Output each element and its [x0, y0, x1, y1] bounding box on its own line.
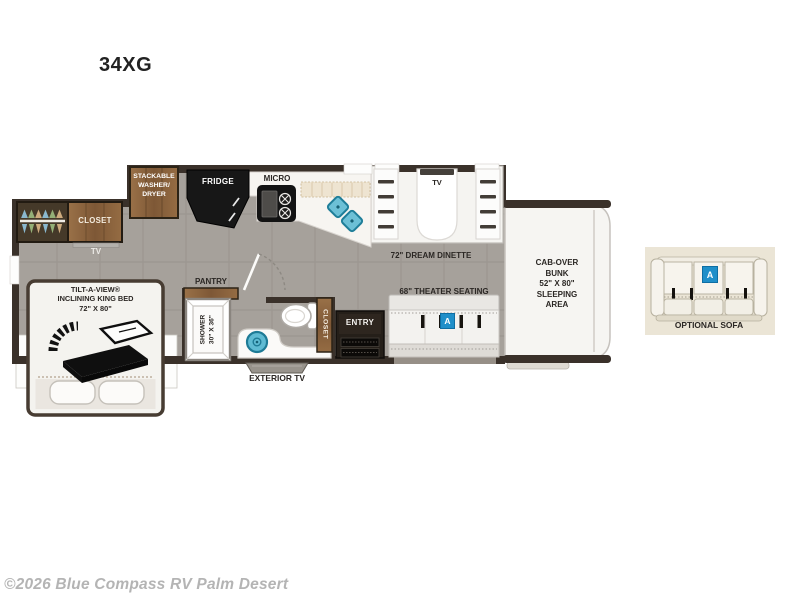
king-bed-label: TILT-A-VIEW® INCLINING KING BED 72" X 80…	[31, 285, 160, 313]
floorplan-page: 34XG	[0, 0, 800, 600]
cooktop-icon	[257, 185, 296, 222]
dinette-tv-label: TV	[420, 178, 454, 187]
pantry-label: PANTRY	[182, 277, 240, 287]
cab-over-bunk-label: CAB-OVER BUNK 52" X 80" SLEEPING AREA	[511, 258, 603, 311]
window-gap	[10, 256, 19, 284]
copyright-watermark: ©2026 Blue Compass RV Palm Desert	[4, 576, 288, 594]
micro-label: MICRO	[255, 174, 299, 184]
dinette-tv-icon	[420, 169, 454, 175]
exterior-tv-label: EXTERIOR TV	[227, 373, 327, 383]
hanger-rack-icon	[17, 202, 68, 242]
round-basin-sink-icon	[247, 332, 267, 352]
bedroom-tv-label: TV	[80, 247, 112, 257]
theater-seating	[389, 295, 499, 364]
pillow	[99, 381, 144, 404]
pillow	[50, 381, 95, 404]
dream-dinette	[371, 164, 503, 243]
theater-option-badge: A	[440, 313, 455, 329]
washer-dryer-label: STACKABLE WASHER/ DRYER	[129, 173, 179, 199]
pantry-shelf	[184, 288, 238, 299]
fridge-label: FRIDGE	[187, 177, 249, 187]
bath-closet-label: CLOSET	[320, 297, 328, 352]
theater-seating-label: 68" THEATER SEATING	[385, 287, 503, 297]
dream-dinette-label: 72" DREAM DINETTE	[368, 251, 494, 261]
sofa-option-badge: A	[702, 266, 718, 283]
entry-label: ENTRY	[338, 318, 382, 328]
toilet-icon	[281, 303, 317, 329]
window-gap	[344, 164, 372, 174]
rear-closet-label: CLOSET	[68, 216, 122, 226]
optional-sofa-label: OPTIONAL SOFA	[657, 320, 761, 330]
shower-label: SHOWER 30" X 36"	[199, 299, 216, 361]
exterior-tv-icon	[246, 363, 308, 373]
